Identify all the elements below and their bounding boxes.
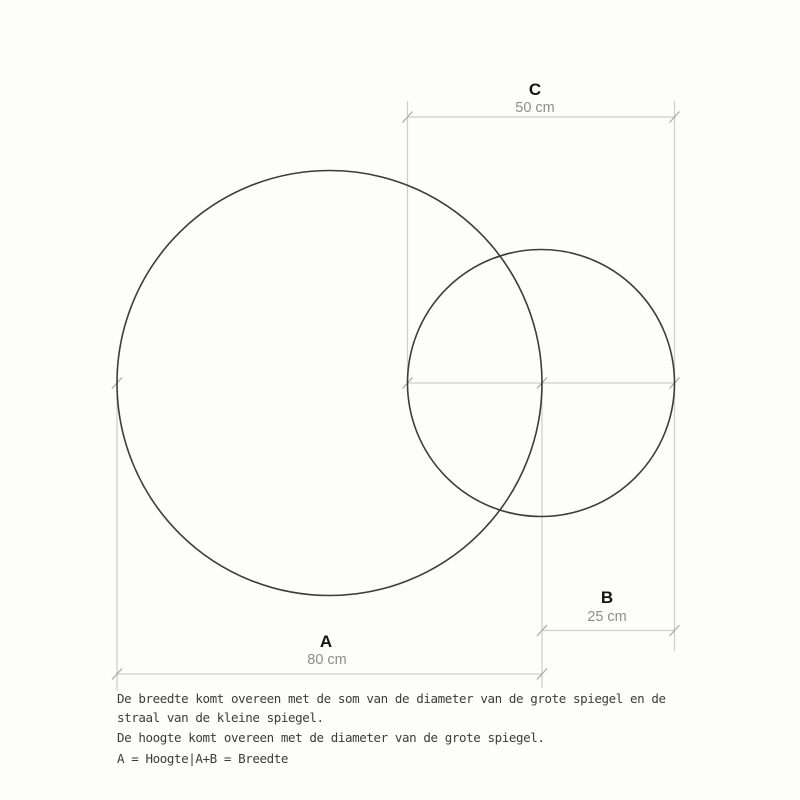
value-b: 25 cm	[587, 609, 627, 625]
dimension-value-labels: 50 cm 25 cm 80 cm	[307, 100, 627, 668]
value-a: 80 cm	[307, 652, 347, 668]
note-formula: A = Hoogte|A+B = Breedte	[117, 750, 677, 769]
value-c: 50 cm	[515, 100, 555, 116]
diagram-svg: C B A 50 cm 25 cm 80 cm	[0, 0, 800, 800]
note-breedte-line1: De breedte komt overeen met de som van d…	[117, 690, 677, 709]
note-hoogte: De hoogte komt overeen met de diameter v…	[117, 729, 677, 748]
dimension-letter-labels: C B A	[320, 80, 613, 651]
tick-marks	[112, 112, 680, 680]
extension-lines	[117, 101, 675, 691]
notes-block: De breedte komt overeen met de som van d…	[117, 690, 677, 768]
note-breedte-line2: straal van de kleine spiegel.	[117, 709, 677, 728]
label-a: A	[320, 632, 332, 651]
dimension-lines	[117, 117, 675, 674]
mirror-dimension-diagram: C B A 50 cm 25 cm 80 cm De breedte komt …	[0, 0, 800, 800]
label-b: B	[601, 588, 613, 607]
label-c: C	[529, 80, 541, 99]
